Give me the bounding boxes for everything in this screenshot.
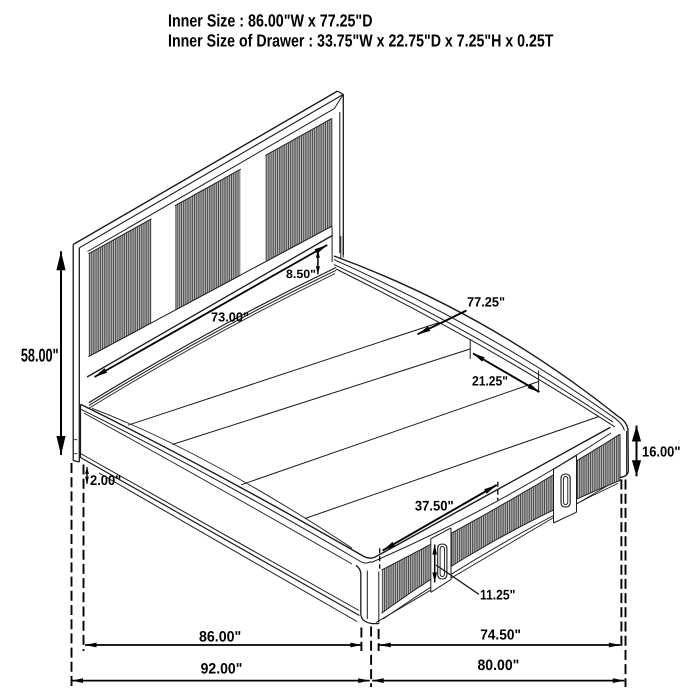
svg-text:74.50": 74.50" <box>480 628 521 644</box>
svg-text:2.00": 2.00" <box>90 472 121 488</box>
svg-text:Inner Size of Drawer : 33.75"W: Inner Size of Drawer : 33.75"W x 22.75"D… <box>168 30 554 50</box>
svg-text:58.00": 58.00" <box>21 345 59 366</box>
svg-text:8.50": 8.50" <box>286 267 316 281</box>
svg-text:Inner Size : 86.00"W x 77.25"D: Inner Size : 86.00"W x 77.25"D <box>168 11 373 31</box>
svg-text:37.50": 37.50" <box>415 497 454 513</box>
svg-text:92.00": 92.00" <box>201 661 243 678</box>
svg-text:21.25": 21.25" <box>472 374 508 389</box>
svg-text:77.25": 77.25" <box>467 295 505 310</box>
svg-text:73.00": 73.00" <box>211 310 249 325</box>
svg-text:16.00": 16.00" <box>642 444 681 460</box>
svg-text:86.00": 86.00" <box>199 629 241 646</box>
svg-text:80.00": 80.00" <box>478 657 520 674</box>
svg-text:11.25": 11.25" <box>480 586 515 602</box>
